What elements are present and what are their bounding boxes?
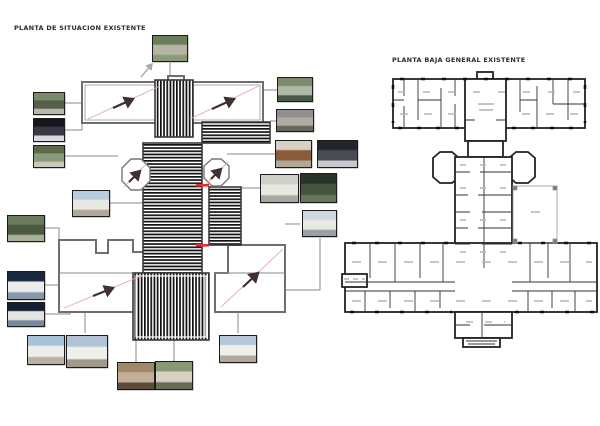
roof-north-tower bbox=[155, 80, 193, 137]
photo-south-facade-1 bbox=[27, 335, 65, 365]
photo-south-facade-2 bbox=[66, 335, 108, 368]
photo-southeast-facade bbox=[219, 335, 257, 363]
floor-plan-right bbox=[342, 72, 597, 347]
entry-porch bbox=[463, 338, 500, 347]
photo-west-garden-2 bbox=[33, 145, 65, 168]
east-octagon-room bbox=[509, 152, 535, 183]
roof-south-hall bbox=[133, 273, 209, 340]
photo-east-trees-dark bbox=[300, 173, 337, 203]
west-annex-box bbox=[342, 274, 367, 287]
floorplan-outer-walls bbox=[342, 72, 597, 347]
photo-inner-west-facade bbox=[72, 190, 110, 217]
patio bbox=[513, 186, 557, 243]
photo-west-garden-1 bbox=[33, 92, 65, 115]
photo-gallery-interior bbox=[260, 174, 299, 203]
roof-central-spine bbox=[143, 143, 202, 273]
photo-east-interior-2 bbox=[302, 210, 337, 237]
drawing-sheet: { "sheet": { "left_plan_title": "PLANTA … bbox=[0, 0, 600, 426]
photo-north-path bbox=[152, 35, 188, 62]
east-wing bbox=[215, 245, 285, 312]
roof-northeast-block bbox=[202, 122, 270, 143]
north-photo-arrow bbox=[141, 64, 152, 77]
photo-west-courtyard bbox=[7, 215, 45, 242]
hall-link bbox=[468, 141, 503, 157]
photo-east-dark-shed bbox=[317, 140, 358, 168]
photo-stone-arch bbox=[117, 362, 155, 390]
roof-east-annex bbox=[209, 187, 241, 245]
photo-west-dark bbox=[33, 118, 65, 142]
photo-southwest-night-1 bbox=[7, 271, 45, 300]
photo-east-porch-car bbox=[277, 77, 313, 102]
photo-southwest-night-2 bbox=[7, 302, 45, 327]
photo-east-facade-gray bbox=[276, 109, 314, 132]
photo-main-entrance bbox=[155, 361, 193, 390]
photo-east-doors bbox=[275, 140, 312, 168]
west-wing bbox=[59, 240, 145, 312]
